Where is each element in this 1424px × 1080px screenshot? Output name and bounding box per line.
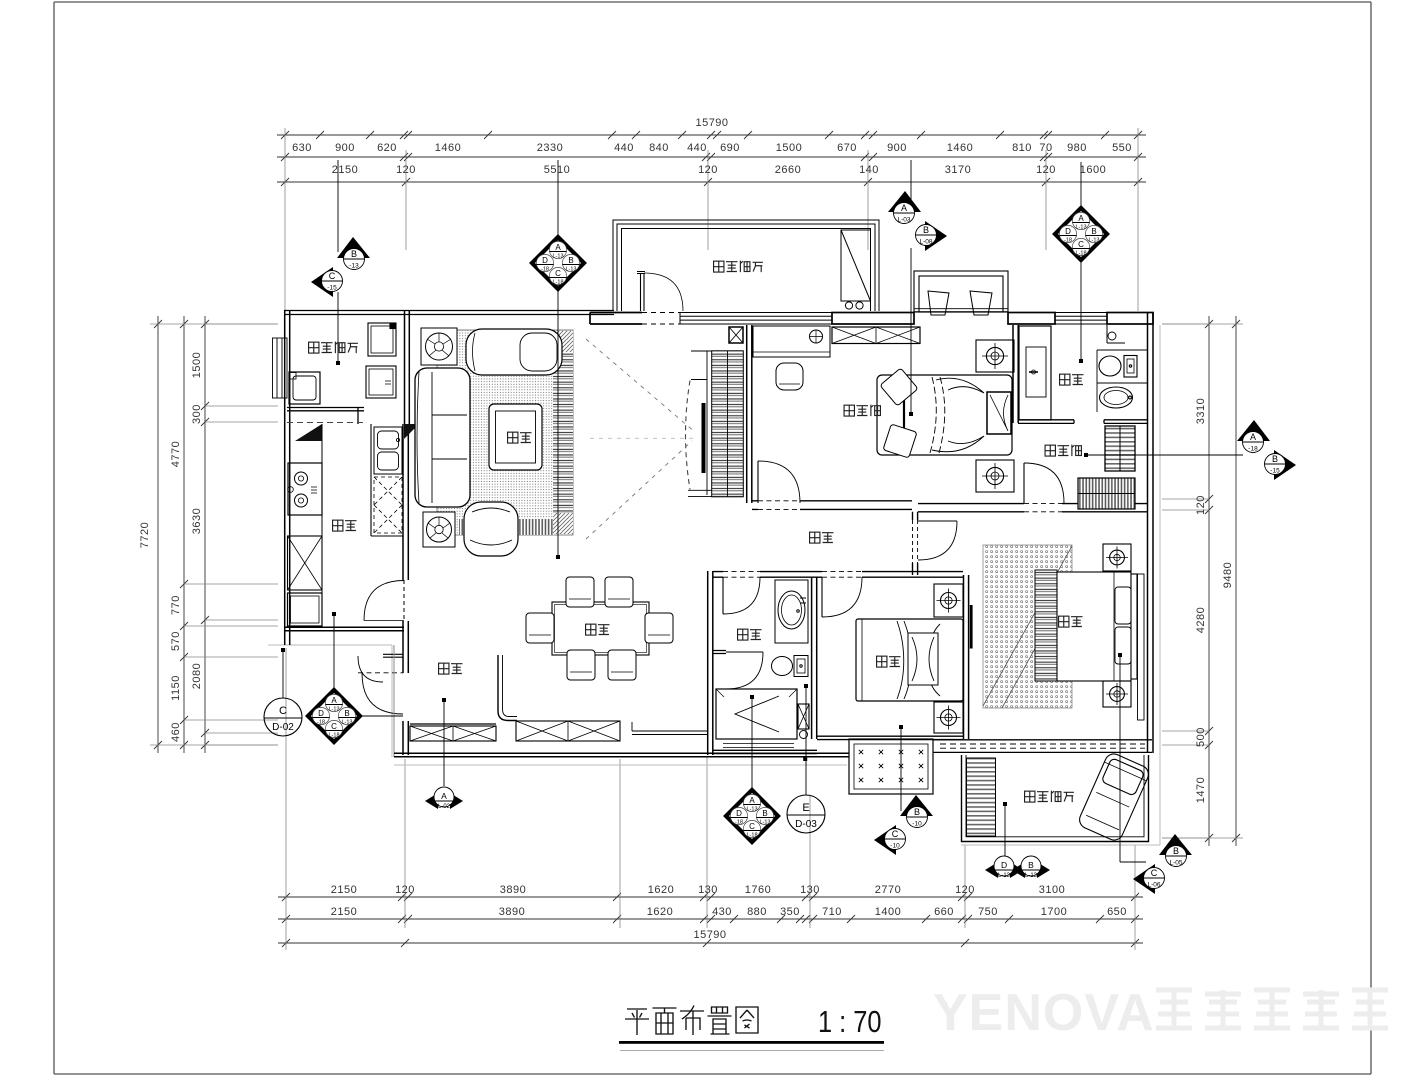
svg-text:120: 120 (955, 884, 975, 896)
svg-text:L-13: L-13 (341, 720, 352, 726)
svg-text:B: B (1272, 454, 1278, 464)
svg-text:-13: -13 (349, 263, 359, 270)
svg-text:D: D (1001, 860, 1007, 870)
svg-text:L-03: L-03 (897, 217, 910, 224)
svg-text:1620: 1620 (648, 884, 674, 896)
svg-text:900: 900 (335, 142, 355, 154)
svg-text:810: 810 (1012, 142, 1032, 154)
svg-text:900: 900 (887, 142, 907, 154)
svg-text:3630: 3630 (191, 508, 203, 534)
svg-text:L-13: L-13 (565, 267, 576, 273)
svg-text:750: 750 (978, 906, 998, 918)
svg-text:440: 440 (687, 142, 707, 154)
svg-text:770: 770 (170, 595, 182, 615)
svg-text:1500: 1500 (191, 352, 203, 378)
svg-text:1470: 1470 (1195, 777, 1207, 803)
svg-text:B: B (568, 256, 573, 265)
svg-text:460: 460 (170, 722, 182, 742)
svg-text:1460: 1460 (947, 142, 973, 154)
svg-text:L-13: L-13 (1075, 225, 1086, 231)
svg-text:YENOVA: YENOVA (933, 984, 1155, 1042)
svg-text:1700: 1700 (1041, 906, 1067, 918)
svg-text:650: 650 (1107, 906, 1127, 918)
svg-text:660: 660 (934, 906, 954, 918)
svg-text:9480: 9480 (1222, 562, 1234, 588)
svg-text:3100: 3100 (1039, 884, 1065, 896)
svg-text:A: A (901, 203, 907, 213)
svg-text:620: 620 (377, 142, 397, 154)
svg-text:L-18: L-18 (1075, 251, 1086, 257)
svg-text:C: C (331, 722, 337, 731)
svg-text:L-18: L-18 (746, 833, 757, 839)
svg-text:980: 980 (1067, 142, 1087, 154)
svg-text:L-02: L-02 (438, 804, 451, 810)
svg-text:670: 670 (837, 142, 857, 154)
svg-text:A: A (331, 696, 337, 705)
svg-text:A: A (1078, 214, 1084, 223)
svg-text:B: B (344, 709, 349, 718)
svg-text:-15: -15 (327, 285, 337, 292)
svg-text:C: C (1078, 240, 1084, 249)
svg-text:E: E (802, 802, 809, 814)
svg-text:C: C (749, 822, 755, 831)
svg-text:3310: 3310 (1195, 398, 1207, 424)
svg-text:B: B (923, 225, 929, 235)
svg-text:C: C (1151, 868, 1158, 878)
svg-text:A: A (555, 243, 561, 252)
svg-text:2080: 2080 (191, 663, 203, 689)
svg-text:570: 570 (170, 631, 182, 651)
svg-text:4770: 4770 (170, 441, 182, 467)
svg-text:-18: -18 (1248, 446, 1258, 453)
svg-text:-18: -18 (735, 820, 743, 826)
svg-text:C: C (279, 705, 287, 717)
svg-text:A: A (441, 791, 447, 801)
svg-text:D: D (318, 709, 324, 718)
svg-text:140: 140 (859, 164, 879, 176)
svg-text:B: B (1173, 846, 1179, 856)
svg-text:L-13: L-13 (998, 873, 1011, 879)
svg-text:1760: 1760 (745, 884, 771, 896)
svg-text:120: 120 (1195, 495, 1207, 515)
svg-text:2150: 2150 (331, 884, 357, 896)
svg-text:L-05: L-05 (1169, 860, 1182, 867)
svg-text:1460: 1460 (435, 142, 461, 154)
svg-text:430: 430 (712, 906, 732, 918)
svg-text:B: B (762, 809, 767, 818)
svg-text:440: 440 (614, 142, 634, 154)
svg-text:120: 120 (698, 164, 718, 176)
svg-text:15790: 15790 (693, 929, 726, 941)
svg-text:-10: -10 (890, 843, 900, 850)
svg-text:1400: 1400 (875, 906, 901, 918)
svg-text:D-03: D-03 (795, 819, 817, 830)
svg-text:630: 630 (292, 142, 312, 154)
svg-text:880: 880 (747, 906, 767, 918)
svg-text:1620: 1620 (647, 906, 673, 918)
svg-text:690: 690 (720, 142, 740, 154)
svg-text:70: 70 (1039, 142, 1052, 154)
svg-text:710: 710 (822, 906, 842, 918)
svg-text:-18: -18 (541, 267, 549, 273)
svg-text:120: 120 (396, 164, 416, 176)
svg-text:2150: 2150 (332, 164, 358, 176)
svg-text:B: B (351, 249, 357, 259)
svg-text:D: D (542, 256, 548, 265)
svg-text:B: B (1091, 227, 1096, 236)
svg-text:3890: 3890 (500, 884, 526, 896)
svg-text:15790: 15790 (695, 117, 728, 129)
svg-text:7720: 7720 (139, 522, 151, 548)
svg-text:L-13: L-13 (328, 707, 339, 713)
svg-text:A: A (1250, 432, 1256, 442)
svg-text:C: C (555, 269, 561, 278)
svg-text:300: 300 (191, 404, 203, 424)
svg-text:1500: 1500 (776, 142, 802, 154)
svg-text:D: D (1065, 227, 1071, 236)
svg-text:4280: 4280 (1195, 607, 1207, 633)
svg-text:D-02: D-02 (272, 722, 294, 733)
svg-text:B: B (1028, 860, 1034, 870)
svg-text:L-13: L-13 (746, 807, 757, 813)
svg-text:L-06: L-06 (1147, 882, 1160, 889)
svg-text:500: 500 (1195, 727, 1207, 747)
svg-text:130: 130 (800, 884, 820, 896)
svg-text:C: C (329, 271, 336, 281)
svg-text:L-18: L-18 (552, 280, 563, 286)
svg-text:B: B (914, 807, 920, 817)
svg-text:1 : 70: 1 : 70 (818, 1005, 882, 1040)
svg-text:L-13: L-13 (552, 254, 563, 260)
svg-text:3890: 3890 (499, 906, 525, 918)
svg-text:L-08: L-08 (919, 239, 932, 246)
svg-text:L-13: L-13 (1025, 873, 1038, 879)
svg-text:-10: -10 (912, 821, 922, 828)
svg-text:D: D (736, 809, 742, 818)
svg-text:1600: 1600 (1080, 164, 1106, 176)
svg-text:2150: 2150 (331, 906, 357, 918)
svg-text:-18: -18 (317, 720, 325, 726)
svg-text:A: A (749, 796, 755, 805)
svg-text:3170: 3170 (945, 164, 971, 176)
svg-text:C: C (892, 829, 899, 839)
svg-text:1150: 1150 (170, 675, 182, 701)
svg-text:L-13: L-13 (1088, 238, 1099, 244)
svg-text:2770: 2770 (875, 884, 901, 896)
svg-text:-15: -15 (1270, 468, 1280, 475)
svg-text:840: 840 (649, 142, 669, 154)
svg-text:350: 350 (780, 906, 800, 918)
svg-text:L-18: L-18 (328, 733, 339, 739)
svg-text:5510: 5510 (544, 164, 570, 176)
svg-text:550: 550 (1112, 142, 1132, 154)
svg-text:2330: 2330 (537, 142, 563, 154)
svg-text:2660: 2660 (775, 164, 801, 176)
svg-text:130: 130 (698, 884, 718, 896)
svg-text:-18: -18 (1064, 238, 1072, 244)
svg-text:120: 120 (395, 884, 415, 896)
svg-text:L-13: L-13 (759, 820, 770, 826)
svg-text:120: 120 (1036, 164, 1056, 176)
